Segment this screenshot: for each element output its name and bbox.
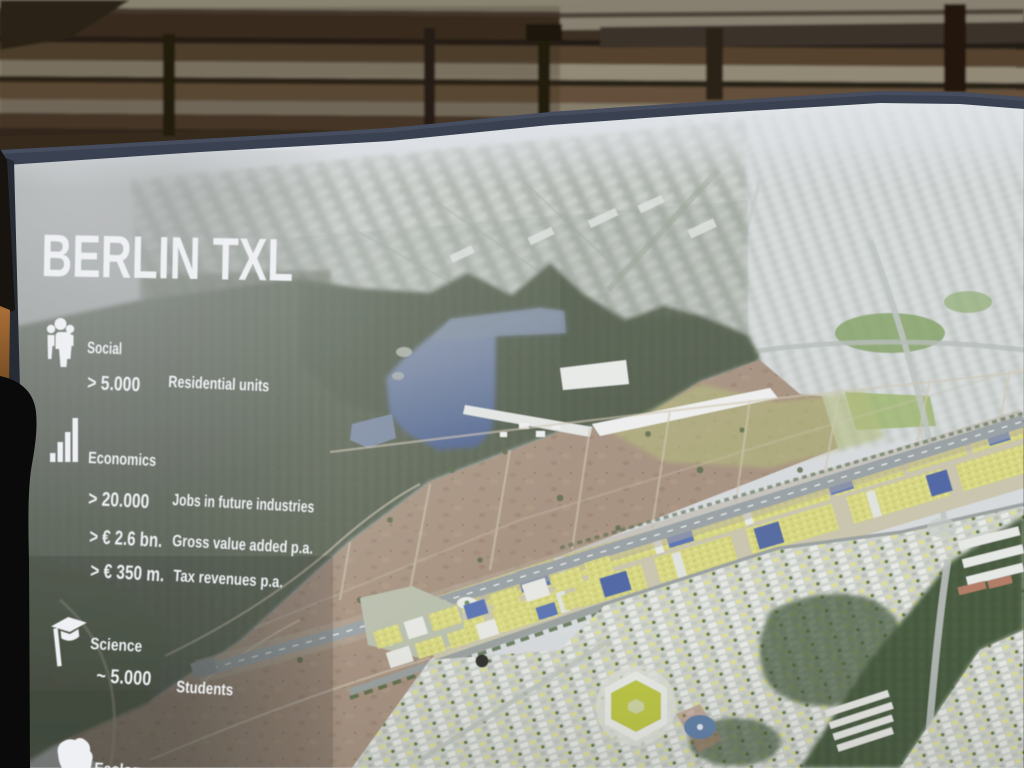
svg-text:> € 350 m.: > € 350 m. [90, 560, 165, 586]
svg-text:> 5.000: > 5.000 [87, 372, 141, 396]
svg-text:~ 5.000: ~ 5.000 [96, 665, 152, 690]
svg-text:Students: Students [176, 678, 234, 699]
svg-text:> 20.000: > 20.000 [88, 488, 150, 513]
svg-text:BERLIN TXL: BERLIN TXL [41, 222, 294, 294]
svg-text:Economics: Economics [88, 449, 157, 470]
svg-text:Social: Social [87, 339, 123, 358]
svg-text:> € 2.6 bn.: > € 2.6 bn. [89, 526, 163, 552]
svg-text:Science: Science [90, 635, 143, 656]
